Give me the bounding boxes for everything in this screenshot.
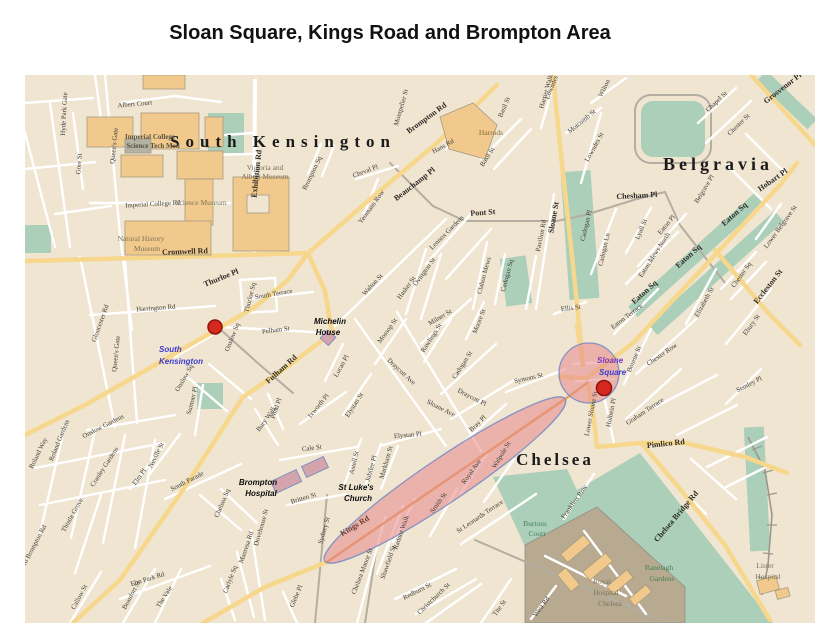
map-label: Thurloe Pl	[202, 266, 240, 288]
map-label: Motcomb St	[567, 108, 598, 135]
map-label: Brompton	[239, 478, 277, 487]
map-label: Onslow Gardens	[81, 413, 125, 440]
map-label: Chelsea	[598, 599, 622, 608]
map-label: Church	[344, 494, 372, 503]
map-label: Belgrave Pl	[693, 174, 715, 205]
map[interactable]: South KensingtonBelgraviaChelseaImperial…	[25, 75, 815, 623]
map-label: South	[159, 345, 182, 354]
map-label: Michelin	[314, 317, 346, 326]
map-label: Ebury St	[742, 313, 762, 337]
brompton-hospital-building	[302, 456, 329, 477]
map-label: Beauchamp Pl	[392, 165, 437, 203]
map-label: Court	[528, 529, 546, 538]
map-label: Britten St	[290, 491, 317, 505]
map-label: House	[316, 328, 341, 337]
map-label: Astell St	[348, 450, 360, 475]
map-label: Gardens	[650, 574, 675, 583]
map-label: Roland Gardens	[48, 418, 71, 462]
map-label: South Kensington	[170, 132, 396, 151]
map-label: Ovington St	[412, 257, 437, 288]
map-label: Cale St	[302, 444, 323, 453]
map-label: Old Brompton Rd	[25, 523, 49, 570]
map-label: St Luke's	[338, 483, 374, 492]
page-title: Sloan Square, Kings Road and Brompton Ar…	[25, 22, 755, 45]
map-container: South KensingtonBelgraviaChelseaImperial…	[25, 75, 815, 623]
map-label: Kensington	[159, 357, 203, 366]
map-label: Hospital	[755, 572, 780, 581]
map-label: Chester St	[726, 113, 751, 138]
map-label: Hospital	[245, 489, 277, 498]
map-label: Lennox Gardens	[429, 214, 466, 251]
map-label: Natural History	[118, 234, 165, 243]
page: Sloan Square, Kings Road and Brompton Ar…	[0, 0, 840, 630]
map-label: Montpelier St	[393, 88, 410, 126]
map-label: Albert Court	[117, 100, 152, 110]
map-label: Hyde Park Gate	[60, 92, 69, 136]
map-label: Pelham St	[262, 325, 291, 335]
map-label: The Vale	[155, 585, 174, 609]
map-label: Museum	[134, 244, 160, 253]
map-label: Elystan St	[344, 392, 365, 419]
map-label: St Leonards Terrace	[456, 499, 505, 535]
map-label: Harrington Rd	[136, 304, 176, 314]
map-label: Science Museum	[175, 198, 227, 207]
map-label: Square	[599, 368, 627, 377]
map-label: Mossop St	[376, 317, 399, 345]
map-label: Eaton Mews North	[638, 231, 672, 279]
map-label: Burtons	[523, 519, 547, 528]
map-label: Dovehouse St	[253, 508, 270, 547]
map-label: Ranelagh	[645, 563, 674, 572]
map-label: Lyall St	[634, 218, 649, 240]
map-label: Queen's Gate	[111, 336, 122, 373]
map-label: Semley Pl	[735, 375, 763, 394]
map-label: Imperial College	[125, 133, 175, 141]
map-label: Science Tech Med	[126, 142, 179, 150]
map-label: Eaton Terrace	[610, 303, 644, 331]
map-label: Carlyle Sq	[222, 564, 239, 594]
map-label: Pimlico Rd	[646, 437, 685, 450]
map-label: Lister	[756, 561, 774, 570]
map-label: Chesham Pl	[616, 190, 658, 201]
map-label: Gore St	[75, 153, 83, 175]
map-label: Fulham Rd	[264, 352, 299, 385]
map-label: Chelsea	[516, 450, 594, 469]
map-label: Belgravia	[663, 154, 773, 174]
map-label: Sloane	[597, 356, 624, 365]
map-label: Sloane St	[546, 201, 560, 234]
map-label: Chester Row	[646, 342, 679, 368]
map-label: Tite St	[492, 599, 508, 618]
map-label: Pont St	[470, 207, 496, 218]
map-label: Albert Museum	[241, 172, 288, 181]
map-label: Hospital	[593, 588, 618, 597]
station-marker[interactable]	[208, 320, 222, 334]
map-label: Clabon Mews	[476, 256, 493, 295]
map-label: Elystan Pl	[394, 431, 422, 440]
map-label: Harrods	[479, 128, 503, 137]
map-label: Sydney St	[317, 516, 331, 545]
map-label: Imperial College Rd	[125, 200, 181, 210]
map-label: Jubilee Pl	[365, 455, 379, 483]
map-label: Glebe Pl	[289, 584, 305, 609]
map-label: Holbein Pl	[605, 398, 617, 428]
map-label: Basil St	[497, 96, 512, 118]
map-label: Walton St	[361, 273, 384, 297]
map-label: Cromwell Rd	[162, 246, 209, 257]
map-label: Royal	[593, 577, 611, 586]
